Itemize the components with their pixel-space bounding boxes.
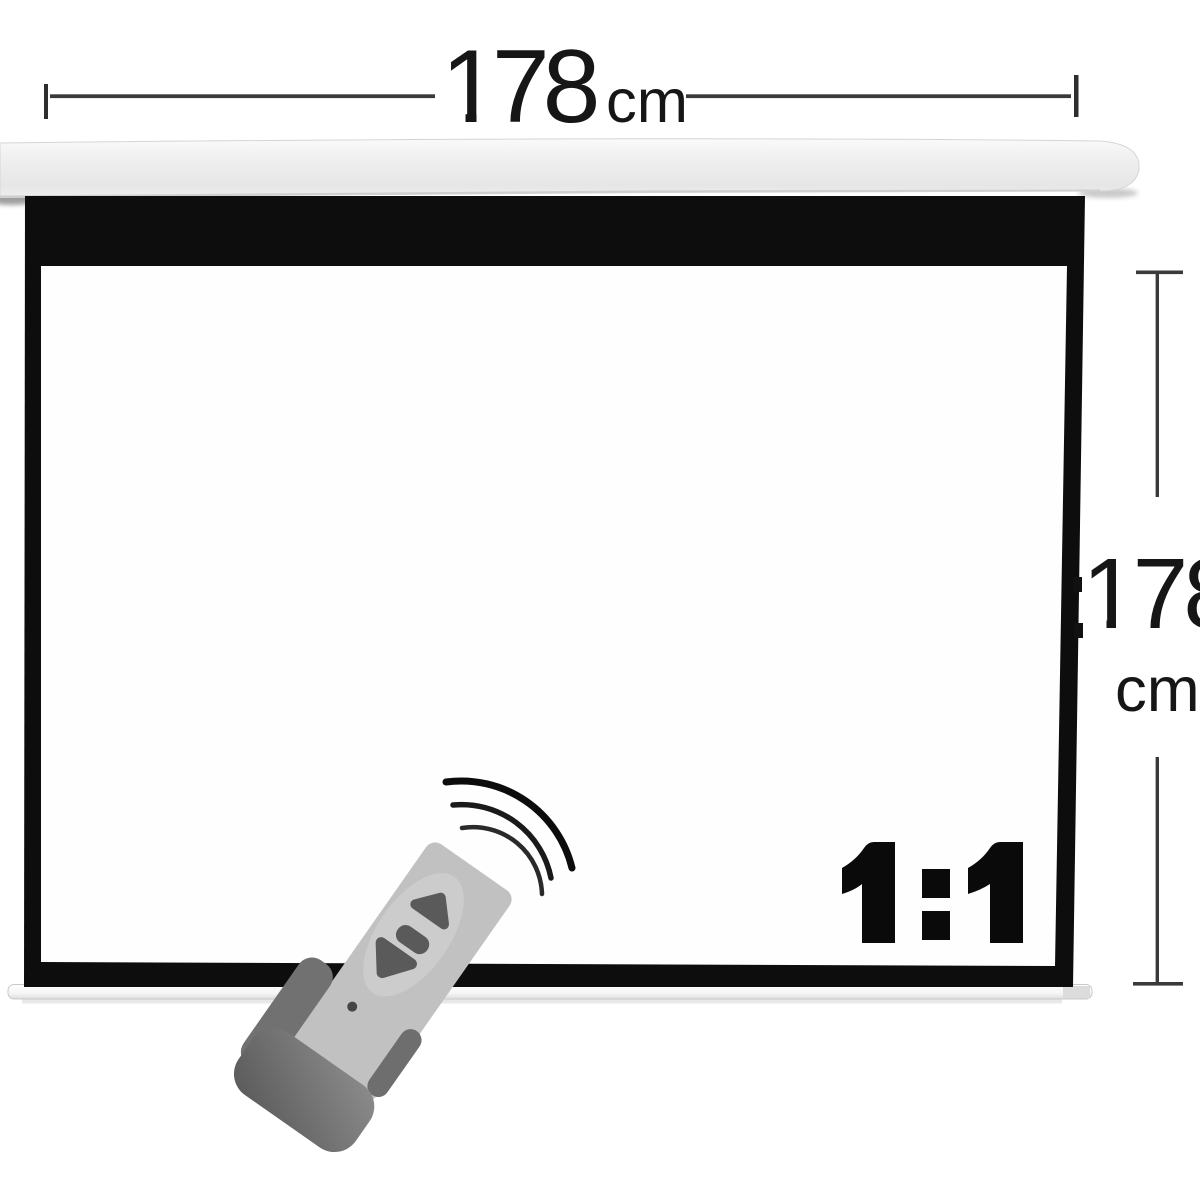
svg-text:cm: cm: [1115, 655, 1200, 725]
svg-text:cm: cm: [606, 67, 688, 136]
svg-text:178: 178: [1082, 538, 1200, 650]
svg-text:178: 178: [441, 29, 597, 145]
